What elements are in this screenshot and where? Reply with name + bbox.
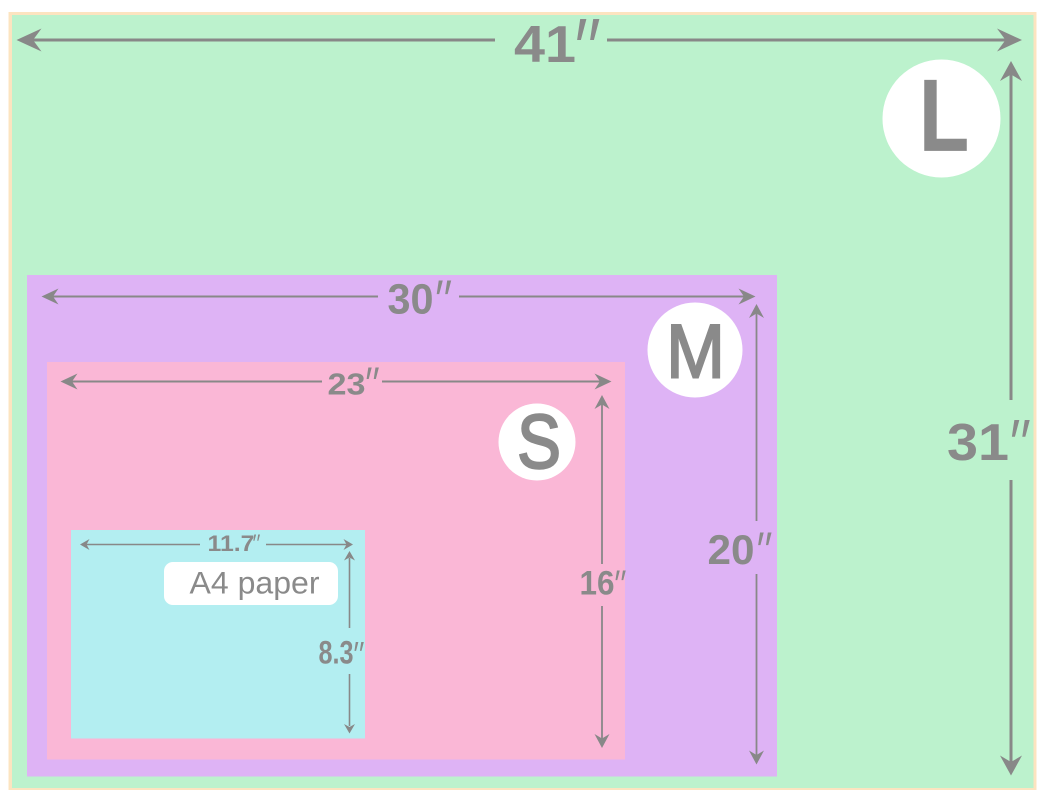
svg-text:30: 30 bbox=[388, 277, 434, 324]
svg-text:16: 16 bbox=[580, 565, 615, 603]
svg-text:8.3: 8.3 bbox=[319, 635, 354, 671]
svg-text:23: 23 bbox=[328, 368, 366, 402]
svg-text:41: 41 bbox=[514, 16, 576, 74]
svg-text:31: 31 bbox=[947, 414, 1009, 472]
svg-text:A4 paper: A4 paper bbox=[190, 565, 320, 601]
svg-text:20: 20 bbox=[708, 526, 755, 573]
svg-text:S: S bbox=[517, 400, 561, 485]
svg-text:L: L bbox=[919, 58, 969, 173]
svg-text:11.7: 11.7 bbox=[208, 531, 255, 556]
svg-text:M: M bbox=[666, 309, 725, 394]
